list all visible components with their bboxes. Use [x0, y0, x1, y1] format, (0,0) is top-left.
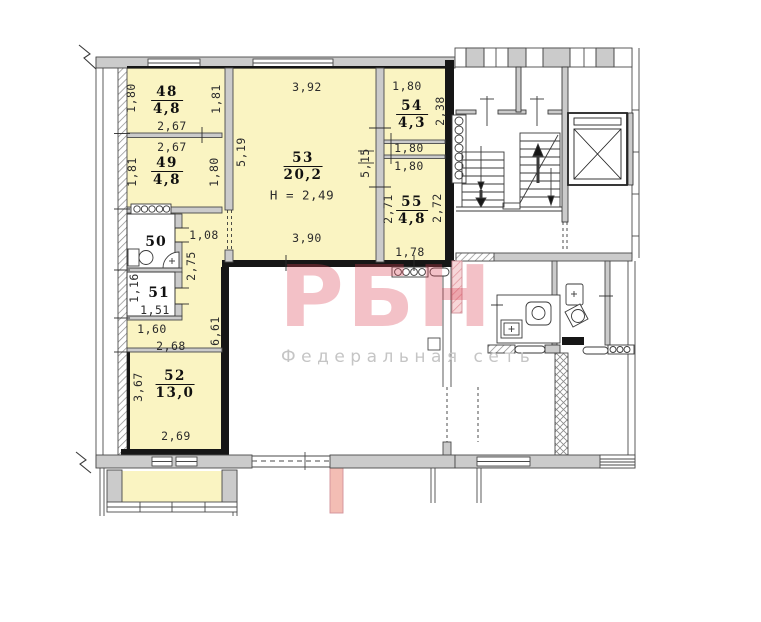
dim-label: 1,80 — [207, 157, 221, 187]
dim-label: 1,80 — [394, 141, 424, 155]
dim-label: 1,80 — [124, 83, 138, 113]
dim-label: 3,67 — [131, 372, 145, 402]
dim-label: 2,68 — [156, 339, 186, 353]
dim-label: 1,08 — [189, 228, 219, 242]
room-number: 54 — [396, 99, 428, 115]
plan-labels: 48 4,8 49 4,8 53 20,2 Н = 2,49 54 4,3 55… — [0, 0, 761, 622]
dim-label: 2,38 — [433, 96, 447, 126]
room-area: 4,3 — [396, 115, 428, 130]
dim-label: 1,81 — [209, 84, 223, 114]
room-49-label: 49 4,8 — [151, 156, 183, 187]
room-area: 4,8 — [396, 211, 428, 226]
room-area: 4,8 — [151, 172, 183, 187]
room-54-label: 54 4,3 — [396, 99, 428, 130]
room-51-label: 51 — [148, 285, 169, 301]
bti-floor-plan: 48 4,8 49 4,8 53 20,2 Н = 2,49 54 4,3 55… — [0, 0, 761, 622]
room-number: 48 — [151, 85, 183, 101]
room-area: 13,0 — [156, 385, 195, 400]
dim-label: 1,81 — [125, 157, 139, 187]
dim-label: 6,61 — [208, 316, 222, 346]
room-53-label: 53 20,2 — [284, 151, 323, 182]
dim-label: 2,67 — [157, 140, 187, 154]
dim-label: 3,90 — [292, 231, 322, 245]
dim-label: 2,67 — [157, 119, 187, 133]
room-52-label: 52 13,0 — [156, 369, 195, 400]
dim-label: 1,78 — [395, 245, 425, 259]
room-number: 55 — [396, 195, 428, 211]
room-number: 52 — [156, 369, 195, 385]
room-number: 49 — [151, 156, 183, 172]
dim-label: 1,80 — [392, 79, 422, 93]
dim-label: 1,51 — [140, 303, 170, 317]
dim-label: 5,15 — [358, 148, 372, 178]
dim-label: 5,19 — [234, 137, 248, 167]
dim-label: 2,69 — [161, 429, 191, 443]
dim-label: 1,80 — [394, 159, 424, 173]
dim-label: 1,16 — [127, 273, 141, 303]
room-55-label: 55 4,8 — [396, 195, 428, 226]
dim-label: 2,71 — [381, 194, 395, 224]
dim-label: 2,75 — [184, 251, 198, 281]
dim-label: 2,72 — [430, 193, 444, 223]
ceiling-height-note: Н = 2,49 — [270, 188, 334, 203]
dim-label: 1,60 — [137, 322, 167, 336]
room-area: 4,8 — [151, 101, 183, 116]
room-area: 20,2 — [284, 167, 323, 182]
dim-label: 3,92 — [292, 80, 322, 94]
room-50-label: 50 — [145, 234, 166, 250]
room-48-label: 48 4,8 — [151, 85, 183, 116]
room-number: 53 — [284, 151, 323, 167]
